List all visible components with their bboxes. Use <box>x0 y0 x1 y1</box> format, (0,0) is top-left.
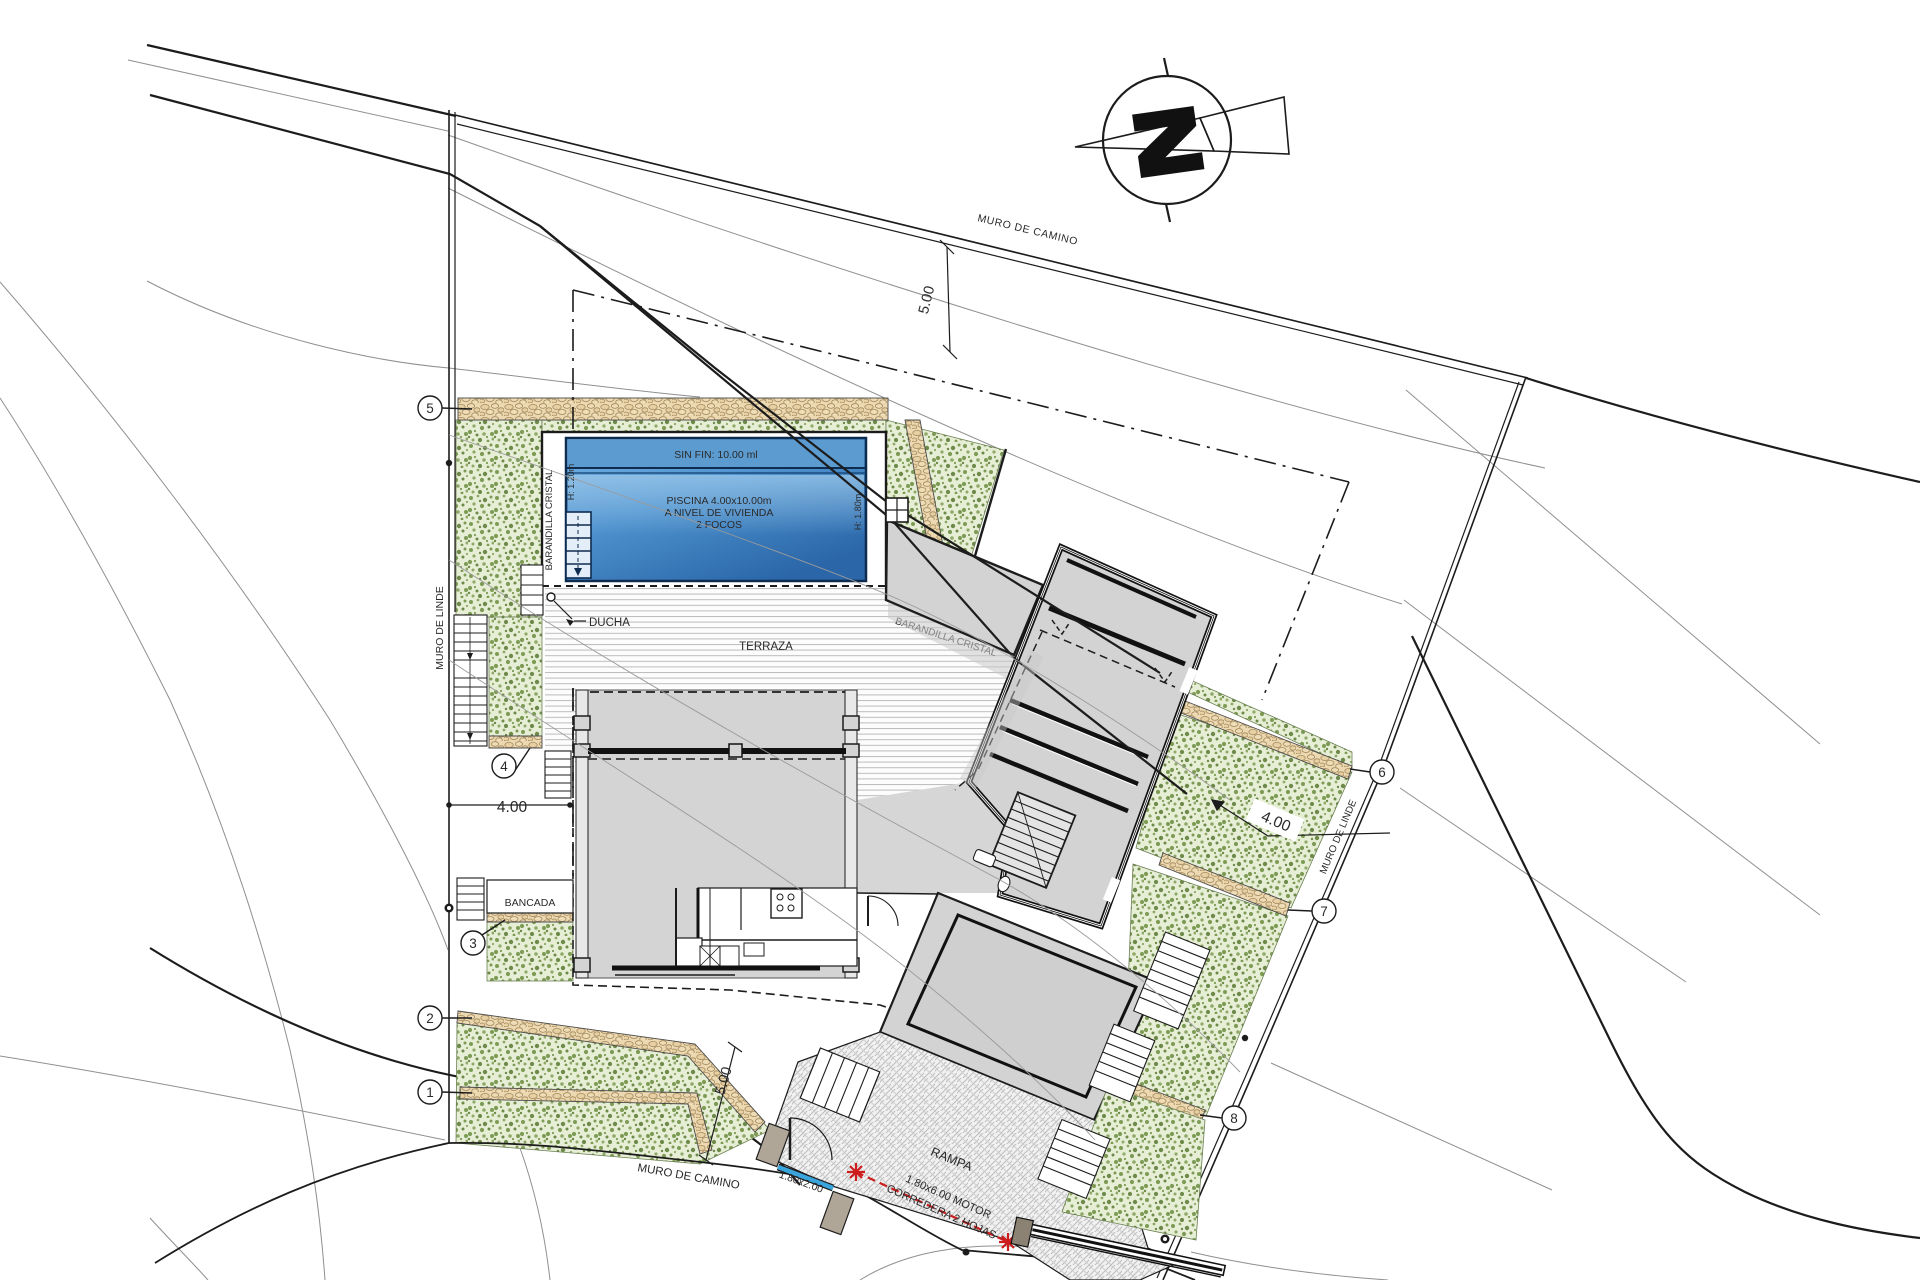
svg-text:H: 1.20m: H: 1.20m <box>566 464 576 501</box>
svg-text:2 FOCOS: 2 FOCOS <box>696 519 742 531</box>
svg-text:2: 2 <box>426 1011 434 1026</box>
svg-text:5: 5 <box>426 401 434 416</box>
svg-text:H: 1.80m: H: 1.80m <box>853 494 863 531</box>
svg-text:3: 3 <box>469 936 477 951</box>
svg-text:BANCADA: BANCADA <box>505 897 556 909</box>
svg-text:PISCINA 4.00x10.00m: PISCINA 4.00x10.00m <box>666 495 771 507</box>
svg-text:7: 7 <box>1320 904 1328 919</box>
svg-text:TERRAZA: TERRAZA <box>739 641 793 653</box>
svg-text:6: 6 <box>1378 765 1386 780</box>
svg-text:DUCHA: DUCHA <box>589 617 630 629</box>
svg-text:1: 1 <box>426 1085 434 1100</box>
svg-text:BARANDILLA CRISTAL: BARANDILLA CRISTAL <box>544 470 555 571</box>
svg-text:SIN FIN: 10.00 ml: SIN FIN: 10.00 ml <box>674 449 757 461</box>
svg-text:8: 8 <box>1230 1111 1238 1126</box>
svg-text:A NIVEL DE VIVIENDA: A NIVEL DE VIVIENDA <box>665 507 774 519</box>
svg-text:4.00: 4.00 <box>497 799 528 816</box>
svg-text:MURO DE LINDE: MURO DE LINDE <box>434 586 446 669</box>
svg-text:4: 4 <box>500 759 508 774</box>
